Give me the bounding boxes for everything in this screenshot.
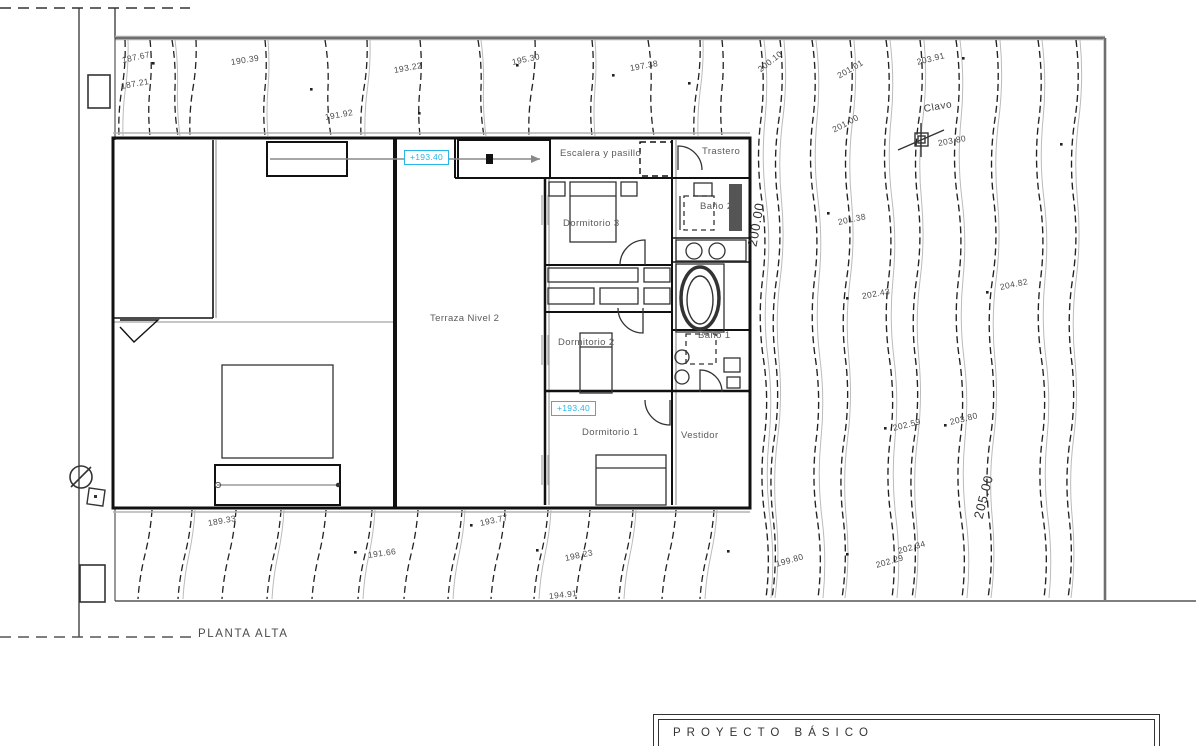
bidet: [675, 370, 689, 384]
room-label: Dormitorio 2: [558, 338, 615, 348]
toilet: [675, 350, 689, 364]
room-label: Escalera y pasillo: [560, 149, 641, 159]
closet: [548, 288, 594, 304]
floor-plan-title: PLANTA ALTA: [198, 628, 288, 640]
title-block: PROYECTO BÁSICO: [653, 714, 1160, 746]
door-dormitorio-1: [645, 400, 670, 425]
bed-dormitorio-1: [596, 455, 666, 505]
stair-direction-arrow: [531, 155, 540, 163]
site-plan-drawing: [0, 0, 1200, 746]
window-opening-symbol: [120, 320, 158, 342]
door-dormitorio-3: [620, 240, 645, 265]
door-bano-1: [700, 370, 722, 392]
elevation-badge: +193.40: [404, 150, 449, 165]
room-label: Vestidor: [681, 431, 719, 441]
room-label: Trastero: [702, 147, 740, 157]
door-trastero: [678, 146, 702, 170]
site-plan-sheet: 187.67187.21190.39191.92193.22195.30197.…: [0, 0, 1200, 746]
room-label: Terraza Nivel 2: [430, 314, 499, 324]
toilet-tank: [694, 183, 712, 196]
sink: [709, 243, 725, 259]
stair-landing-dashed: [640, 142, 672, 176]
washbasin: [724, 358, 740, 372]
room-label: Dormitorio 1: [582, 428, 639, 438]
skylight: [222, 365, 333, 458]
title-block-text: PROYECTO BÁSICO: [658, 719, 1155, 746]
room-label: Dormitorio 3: [563, 219, 620, 229]
room-label: Baño 1: [698, 331, 731, 341]
door-arcs: [618, 146, 722, 425]
room-label: Baño 2: [700, 202, 733, 212]
sink: [686, 243, 702, 259]
contour-lines: [119, 40, 1082, 599]
closet: [644, 268, 670, 282]
stairs-upper-center: [270, 140, 672, 178]
furniture: [222, 182, 746, 505]
closet: [644, 288, 670, 304]
spot-elevation-dots: [152, 57, 1063, 556]
elevation-badge: +193.40: [551, 401, 596, 416]
closet: [548, 268, 638, 282]
bed-dormitorio-3: [570, 182, 616, 242]
stairs-lower: [215, 465, 340, 505]
closet: [600, 288, 638, 304]
